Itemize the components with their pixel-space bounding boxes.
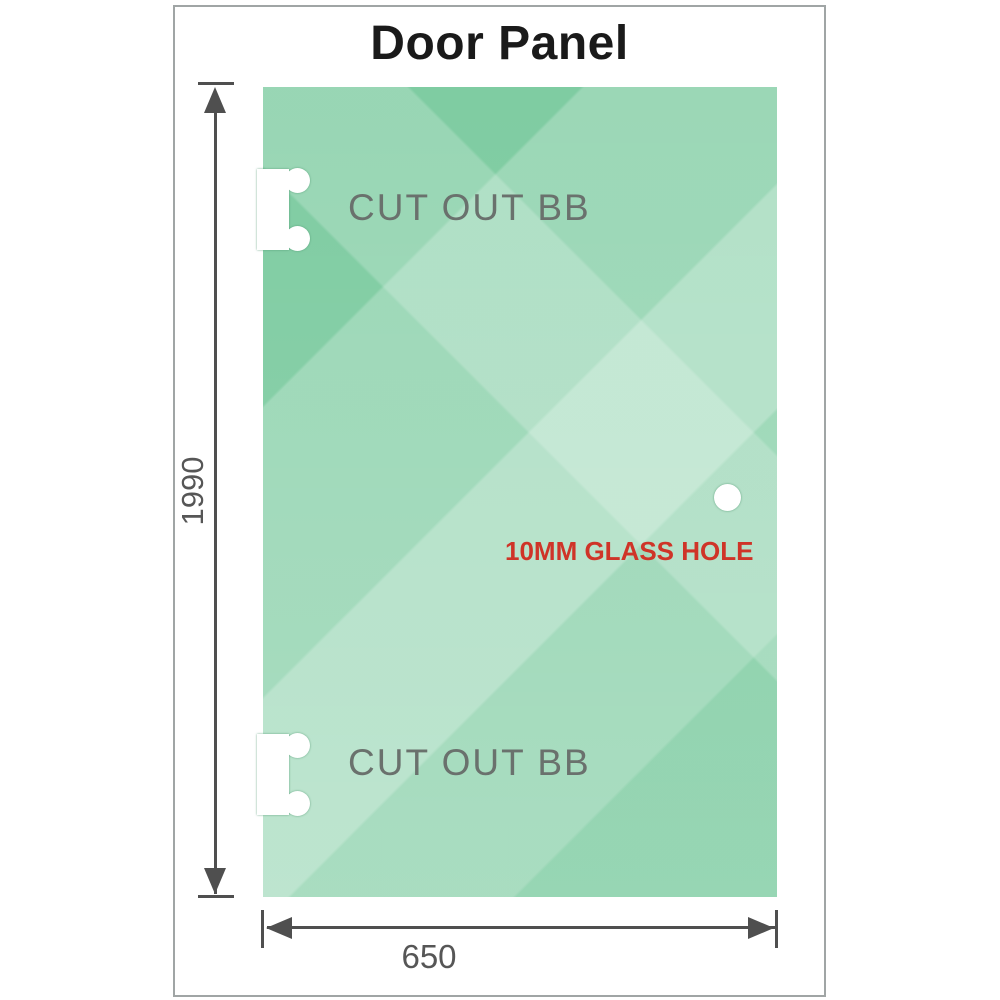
dimension-tick-left [261,910,264,948]
cutout-drill-lobe [285,168,310,193]
glass-hole [714,484,741,511]
page-title: Door Panel [173,16,826,71]
dimension-cap-top [198,82,234,85]
width-dimension-value: 650 [369,938,489,976]
width-dimension-line [267,926,775,929]
arrow-down-icon [204,868,226,894]
diagram-canvas: Door Panel CUT OUT BB CUT OUT BB 10MM GL… [0,0,1000,1000]
dimension-cap-bottom [198,895,234,898]
glass-hole-label: 10MM GLASS HOLE [505,536,720,567]
cutout-drill-lobe [285,791,310,816]
cutout-drill-lobe [285,733,310,758]
height-dimension-value: 1990 [175,431,211,551]
hinge-cutout-bottom [257,730,311,820]
dimension-tick-right [775,910,778,948]
arrow-right-icon [748,917,774,939]
cutout-bottom-label: CUT OUT BB [348,742,591,784]
height-dimension-line [214,92,217,894]
arrow-up-icon [204,87,226,113]
cutout-drill-lobe [285,226,310,251]
arrow-left-icon [266,917,292,939]
hinge-cutout-top [257,165,311,255]
cutout-top-label: CUT OUT BB [348,187,591,229]
